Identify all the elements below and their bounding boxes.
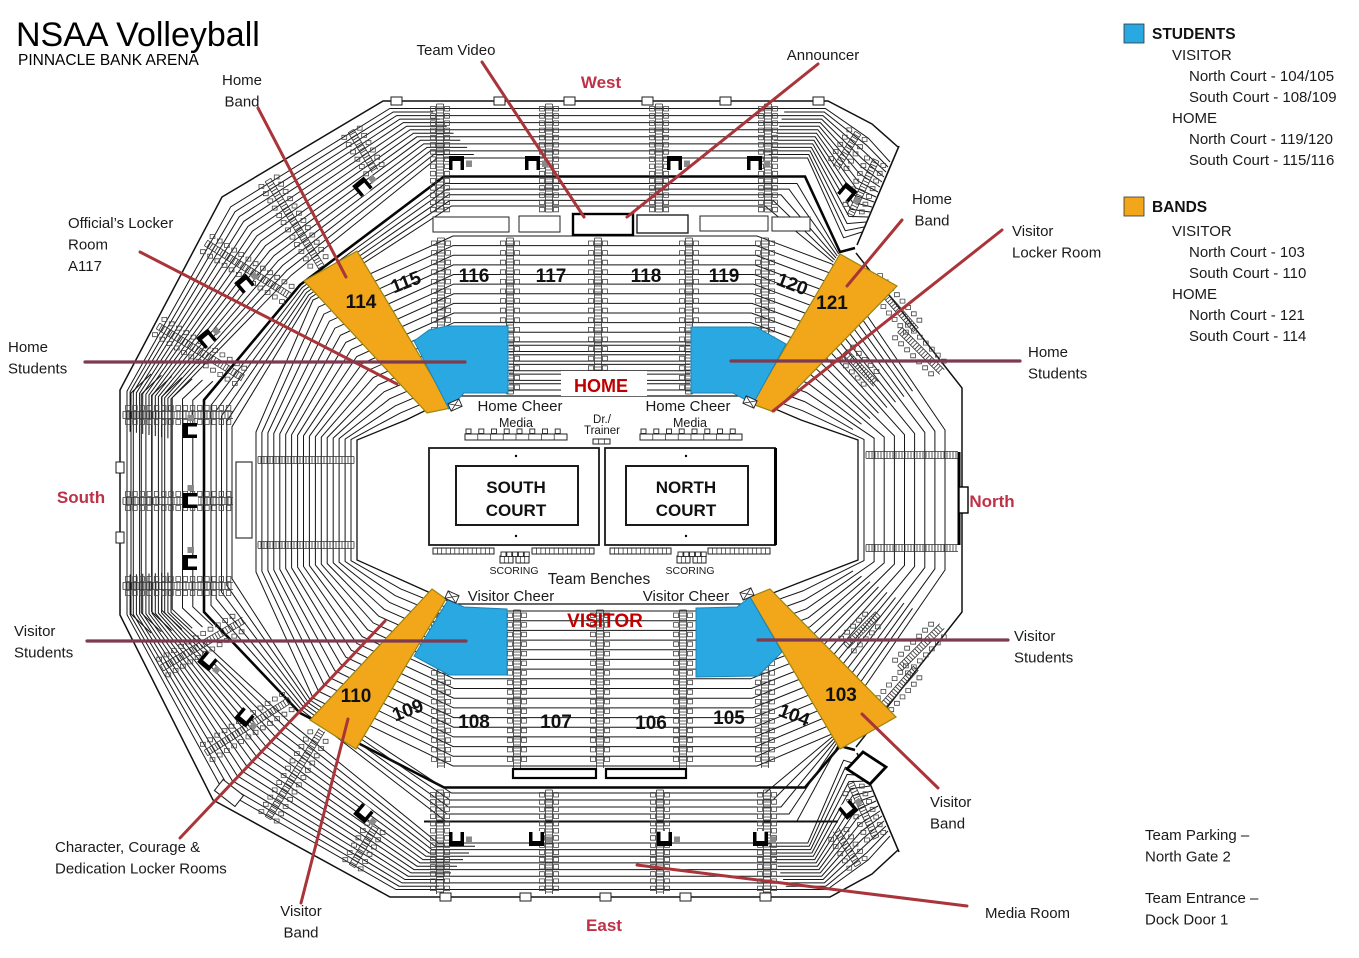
svg-text:North Court - 121: North Court - 121 (1189, 307, 1305, 324)
svg-text:Team Benches: Team Benches (548, 571, 651, 588)
svg-text:Visitor: Visitor (280, 903, 321, 920)
svg-text:A117: A117 (68, 258, 102, 275)
svg-text:Media Room: Media Room (985, 905, 1070, 922)
svg-text:VISITOR: VISITOR (567, 611, 643, 632)
svg-text:South Court - 115/116: South Court - 115/116 (1189, 152, 1334, 169)
svg-text:STUDENTS: STUDENTS (1152, 26, 1236, 43)
svg-text:106: 106 (635, 713, 667, 734)
svg-text:Visitor: Visitor (1012, 223, 1053, 240)
svg-text:Visitor: Visitor (930, 794, 971, 811)
svg-text:Dedication Locker Rooms: Dedication Locker Rooms (55, 861, 227, 878)
svg-text:Home: Home (1028, 344, 1068, 361)
svg-text:SCORING: SCORING (489, 565, 538, 577)
svg-text:Band: Band (224, 94, 259, 111)
svg-text:Visitor Cheer: Visitor Cheer (643, 588, 729, 605)
svg-text:VISITOR: VISITOR (1172, 47, 1232, 64)
svg-text:NSAA Volleyball: NSAA Volleyball (16, 16, 260, 54)
svg-text:110: 110 (341, 686, 372, 707)
svg-text:Team Entrance –: Team Entrance – (1145, 890, 1259, 907)
svg-text:BANDS: BANDS (1152, 199, 1207, 216)
svg-text:NORTH: NORTH (656, 478, 716, 497)
svg-text:North Court - 104/105: North Court - 104/105 (1189, 68, 1334, 85)
svg-text:Band: Band (283, 925, 318, 942)
svg-text:Home Cheer: Home Cheer (477, 398, 562, 415)
svg-text:SCORING: SCORING (665, 565, 714, 577)
svg-text:HOME: HOME (1172, 286, 1217, 303)
svg-text:COURT: COURT (656, 501, 717, 520)
svg-text:Home Cheer: Home Cheer (645, 398, 730, 415)
svg-text:Visitor Cheer: Visitor Cheer (468, 588, 554, 605)
svg-text:PINNACLE BANK ARENA: PINNACLE BANK ARENA (18, 52, 200, 69)
svg-text:North Court - 103: North Court - 103 (1189, 244, 1305, 261)
svg-text:SOUTH: SOUTH (486, 478, 546, 497)
svg-text:North Gate 2: North Gate 2 (1145, 849, 1231, 866)
svg-text:Students: Students (1028, 366, 1087, 383)
svg-text:119: 119 (709, 266, 740, 287)
svg-text:South Court - 108/109: South Court - 108/109 (1189, 89, 1337, 106)
svg-text:Students: Students (1014, 650, 1073, 667)
svg-text:121: 121 (816, 293, 848, 314)
svg-text:East: East (586, 916, 622, 935)
svg-text:HOME: HOME (1172, 110, 1217, 127)
svg-text:Band: Band (914, 213, 949, 230)
svg-text:103: 103 (825, 685, 857, 706)
svg-text:Character, Courage &: Character, Courage & (55, 839, 200, 856)
svg-text:North: North (969, 492, 1014, 511)
svg-text:Team Video: Team Video (417, 42, 496, 59)
svg-text:Dock Door 1: Dock Door 1 (1145, 912, 1228, 929)
svg-text:VISITOR: VISITOR (1172, 223, 1232, 240)
svg-text:117: 117 (536, 266, 567, 287)
svg-text:107: 107 (540, 712, 572, 733)
svg-text:Home: Home (912, 191, 952, 208)
svg-text:HOME: HOME (574, 376, 628, 396)
svg-text:Trainer: Trainer (584, 425, 620, 437)
svg-text:116: 116 (459, 266, 490, 287)
svg-text:Home: Home (222, 72, 262, 89)
svg-text:South Court - 110: South Court - 110 (1189, 265, 1306, 282)
svg-text:Home: Home (8, 339, 48, 356)
svg-text:Media: Media (673, 416, 707, 430)
svg-text:114: 114 (346, 292, 377, 313)
svg-text:Announcer: Announcer (787, 47, 860, 64)
svg-text:Visitor: Visitor (14, 623, 55, 640)
svg-text:Visitor: Visitor (1014, 628, 1055, 645)
svg-text:Locker Room: Locker Room (1012, 245, 1101, 262)
svg-text:North Court - 119/120: North Court - 119/120 (1189, 131, 1333, 148)
svg-text:South: South (57, 488, 105, 507)
svg-text:COURT: COURT (486, 501, 547, 520)
svg-text:Official’s Locker: Official’s Locker (68, 215, 173, 232)
svg-text:Band: Band (930, 816, 965, 833)
svg-text:Room: Room (68, 237, 108, 254)
svg-text:Team Parking –: Team Parking – (1145, 827, 1250, 844)
svg-text:Media: Media (499, 416, 533, 430)
svg-text:105: 105 (713, 708, 745, 729)
svg-text:108: 108 (458, 712, 490, 733)
svg-text:Students: Students (14, 645, 73, 662)
svg-text:118: 118 (631, 266, 662, 287)
svg-text:Students: Students (8, 361, 67, 378)
svg-text:West: West (581, 73, 622, 92)
svg-text:South Court - 114: South Court - 114 (1189, 328, 1306, 345)
